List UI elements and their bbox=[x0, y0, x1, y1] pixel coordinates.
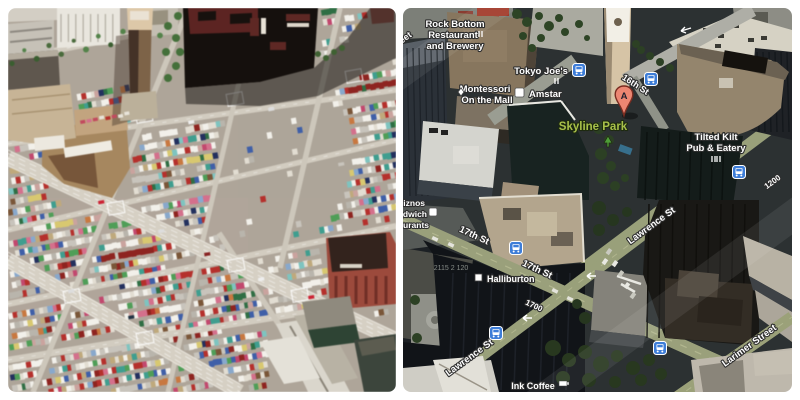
svg-text:Tokyo Joe's: Tokyo Joe's bbox=[514, 66, 568, 77]
svg-text:Skyline Park: Skyline Park bbox=[559, 121, 628, 133]
svg-text:Pub & Eatery: Pub & Eatery bbox=[686, 143, 746, 154]
svg-text:Quiznos: Quiznos bbox=[403, 198, 425, 208]
svg-text:2115 2 120: 2115 2 120 bbox=[434, 265, 469, 272]
svg-text:and Brewery: and Brewery bbox=[426, 41, 484, 52]
svg-text:Rock Bottom: Rock Bottom bbox=[425, 19, 484, 30]
svg-text:Sandwich: Sandwich bbox=[403, 209, 427, 219]
svg-text:Restaurant: Restaurant bbox=[428, 30, 478, 41]
svg-text:staurants: staurants bbox=[403, 220, 429, 230]
svg-text:A: A bbox=[621, 91, 628, 102]
svg-text:On the Mall: On the Mall bbox=[461, 95, 512, 106]
svg-text:Ink Coffee: Ink Coffee bbox=[511, 381, 555, 391]
svg-text:Amstar: Amstar bbox=[529, 89, 562, 100]
svg-text:Tilted Kilt: Tilted Kilt bbox=[694, 132, 738, 143]
svg-text:Halliburton: Halliburton bbox=[487, 274, 535, 284]
svg-text:Montessori: Montessori bbox=[460, 84, 511, 95]
